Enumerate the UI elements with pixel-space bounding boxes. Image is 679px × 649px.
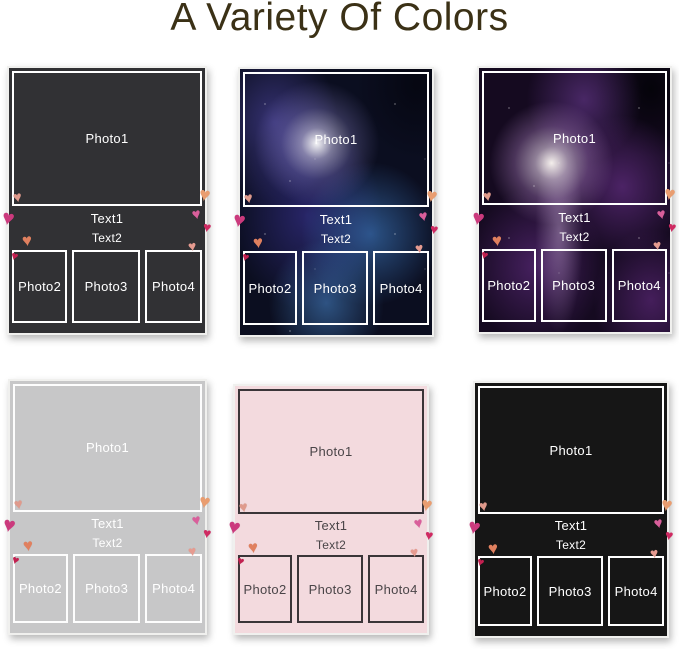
blanket-card-blue-galaxy: Photo1 Text1 Text2 Photo2 Photo3 Photo4 … — [238, 67, 434, 337]
text2-label: Text2 — [559, 230, 589, 244]
bottom-photo-row: Photo2 Photo3 Photo4 — [478, 556, 664, 626]
photo2-placeholder: Photo2 — [478, 556, 532, 626]
photo3-label: Photo3 — [314, 281, 357, 296]
photo2-placeholder: Photo2 — [238, 555, 292, 623]
blanket-card-light-gray: Photo1 Text1 Text2 Photo2 Photo3 Photo4 … — [8, 379, 207, 635]
text2-label: Text2 — [321, 232, 351, 246]
photo3-label: Photo3 — [85, 581, 128, 596]
photo4-placeholder: Photo4 — [612, 249, 667, 322]
text2-label: Text2 — [92, 231, 122, 245]
text-band: Text1 Text2 — [13, 512, 202, 554]
photo4-label: Photo4 — [152, 581, 195, 596]
page-title: A Variety Of Colors — [0, 0, 679, 40]
photo3-label: Photo3 — [552, 278, 595, 293]
photo3-label: Photo3 — [309, 582, 352, 597]
photo2-label: Photo2 — [487, 278, 530, 293]
bottom-photo-row: Photo2 Photo3 Photo4 — [13, 554, 202, 623]
text1-label: Text1 — [558, 210, 591, 225]
bottom-photo-row: Photo2 Photo3 Photo4 — [482, 249, 667, 322]
photo1-label: Photo1 — [85, 131, 128, 146]
photo2-label: Photo2 — [19, 581, 62, 596]
photo1-label: Photo1 — [314, 132, 357, 147]
blanket-card-pink: Photo1 Text1 Text2 Photo2 Photo3 Photo4 … — [233, 384, 429, 635]
photo2-label: Photo2 — [18, 279, 61, 294]
photo2-label: Photo2 — [483, 584, 526, 599]
photo1-placeholder: Photo1 — [482, 71, 667, 205]
photo4-label: Photo4 — [375, 582, 418, 597]
photo4-placeholder: Photo4 — [145, 554, 202, 623]
text1-label: Text1 — [555, 518, 588, 533]
bottom-photo-row: Photo2 Photo3 Photo4 — [12, 250, 202, 323]
text1-label: Text1 — [320, 212, 353, 227]
photo3-placeholder: Photo3 — [541, 249, 607, 322]
blanket-card-purple-galaxy: Photo1 Text1 Text2 Photo2 Photo3 Photo4 … — [477, 66, 672, 334]
text1-label: Text1 — [91, 211, 124, 226]
photo2-label: Photo2 — [248, 281, 291, 296]
photo3-placeholder: Photo3 — [302, 251, 368, 325]
photo1-placeholder: Photo1 — [243, 72, 429, 207]
text-band: Text1 Text2 — [12, 206, 202, 250]
photo3-label: Photo3 — [85, 279, 128, 294]
photo4-label: Photo4 — [615, 584, 658, 599]
photo1-label: Photo1 — [549, 443, 592, 458]
photo4-label: Photo4 — [618, 278, 661, 293]
photo4-label: Photo4 — [380, 281, 423, 296]
photo1-placeholder: Photo1 — [238, 389, 424, 514]
text1-label: Text1 — [315, 518, 348, 533]
bottom-photo-row: Photo2 Photo3 Photo4 — [243, 251, 429, 325]
photo1-placeholder: Photo1 — [12, 71, 202, 206]
photo1-label: Photo1 — [309, 444, 352, 459]
photo2-placeholder: Photo2 — [12, 250, 67, 323]
photo3-placeholder: Photo3 — [72, 250, 140, 323]
text-band: Text1 Text2 — [238, 514, 424, 555]
photo1-label: Photo1 — [553, 131, 596, 146]
photo4-label: Photo4 — [152, 279, 195, 294]
photo2-placeholder: Photo2 — [243, 251, 297, 325]
photo2-placeholder: Photo2 — [13, 554, 68, 623]
photo3-placeholder: Photo3 — [537, 556, 603, 626]
blanket-card-dark-gray: Photo1 Text1 Text2 Photo2 Photo3 Photo4 … — [7, 66, 207, 335]
blanket-card-black: Photo1 Text1 Text2 Photo2 Photo3 Photo4 … — [473, 381, 669, 638]
photo4-placeholder: Photo4 — [145, 250, 202, 323]
text1-label: Text1 — [91, 516, 124, 531]
text-band: Text1 Text2 — [243, 207, 429, 251]
text2-label: Text2 — [92, 536, 122, 550]
bottom-photo-row: Photo2 Photo3 Photo4 — [238, 555, 424, 623]
photo4-placeholder: Photo4 — [608, 556, 664, 626]
photo3-label: Photo3 — [549, 584, 592, 599]
text-band: Text1 Text2 — [478, 514, 664, 556]
photo1-placeholder: Photo1 — [478, 386, 664, 514]
text2-label: Text2 — [316, 538, 346, 552]
photo3-placeholder: Photo3 — [297, 555, 363, 623]
photo1-label: Photo1 — [86, 440, 129, 455]
photo2-placeholder: Photo2 — [482, 249, 536, 322]
photo3-placeholder: Photo3 — [73, 554, 140, 623]
photo4-placeholder: Photo4 — [373, 251, 429, 325]
photo2-label: Photo2 — [243, 582, 286, 597]
text2-label: Text2 — [556, 538, 586, 552]
text-band: Text1 Text2 — [482, 205, 667, 249]
photo1-placeholder: Photo1 — [13, 384, 202, 512]
photo4-placeholder: Photo4 — [368, 555, 424, 623]
